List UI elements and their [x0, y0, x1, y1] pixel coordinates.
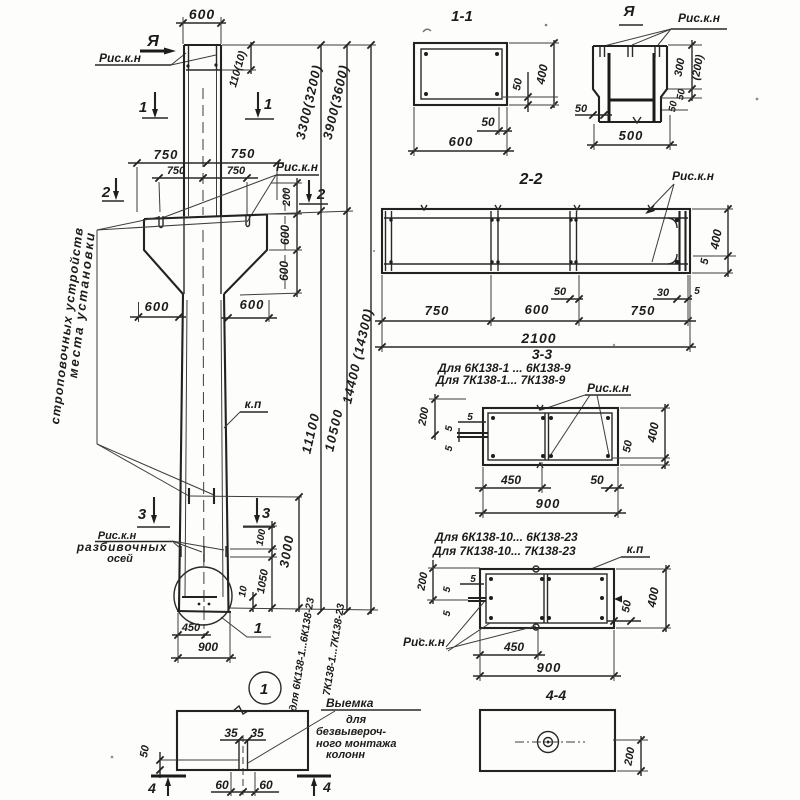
svg-text:к.п: к.п	[245, 397, 262, 411]
svg-text:для: для	[346, 714, 367, 726]
svg-text:3: 3	[138, 506, 147, 523]
svg-text:750: 750	[631, 303, 656, 318]
svg-text:200: 200	[281, 187, 293, 207]
svg-text:750: 750	[227, 165, 246, 177]
svg-text:30: 30	[657, 287, 670, 299]
svg-text:5: 5	[694, 286, 700, 297]
svg-text:50: 50	[575, 103, 588, 115]
svg-text:35: 35	[250, 726, 264, 740]
svg-text:60: 60	[259, 778, 273, 792]
svg-text:1: 1	[260, 681, 268, 698]
svg-text:750: 750	[154, 147, 179, 162]
svg-text:900: 900	[198, 640, 218, 654]
svg-text:1: 1	[264, 96, 272, 113]
svg-text:3: 3	[262, 505, 271, 522]
svg-text:2-2: 2-2	[518, 171, 542, 188]
svg-text:50: 50	[554, 286, 567, 298]
svg-text:3-3: 3-3	[532, 346, 552, 362]
svg-text:600: 600	[145, 299, 170, 314]
svg-text:безвывероч-: безвывероч-	[316, 726, 386, 738]
svg-text:750: 750	[425, 303, 450, 318]
svg-text:осей: осей	[107, 553, 133, 565]
svg-text:Рис.к.н: Рис.к.н	[403, 635, 446, 649]
svg-text:к.п: к.п	[627, 542, 644, 556]
svg-text:4-4: 4-4	[545, 687, 566, 703]
svg-text:600: 600	[240, 297, 265, 312]
svg-text:450: 450	[500, 473, 521, 487]
svg-text:600: 600	[189, 6, 215, 22]
svg-text:35: 35	[224, 726, 238, 740]
svg-text:450: 450	[503, 640, 524, 654]
svg-text:Я: Я	[146, 33, 159, 50]
svg-text:750: 750	[167, 165, 186, 177]
svg-text:600: 600	[525, 302, 550, 317]
svg-text:1: 1	[139, 99, 147, 116]
svg-text:50: 50	[481, 115, 495, 129]
svg-text:колонн: колонн	[326, 749, 365, 761]
svg-text:50: 50	[590, 473, 604, 487]
svg-text:4: 4	[147, 780, 156, 796]
svg-text:4: 4	[322, 779, 331, 795]
svg-text:2: 2	[101, 184, 111, 201]
svg-text:900: 900	[537, 660, 562, 675]
svg-text:60: 60	[215, 778, 229, 792]
svg-text:2100: 2100	[520, 330, 556, 346]
svg-text:Рис.к.н: Рис.к.н	[678, 11, 721, 25]
svg-text:разбивочных: разбивочных	[76, 540, 168, 554]
svg-text:1-1: 1-1	[451, 8, 473, 25]
svg-text:500: 500	[619, 128, 644, 143]
svg-text:Рис.к.н: Рис.к.н	[587, 381, 630, 395]
svg-text:450: 450	[181, 622, 201, 634]
svg-text:900: 900	[536, 496, 561, 511]
svg-text:750: 750	[231, 146, 256, 161]
svg-text:Для 7К138-10... 7К138-23: Для 7К138-10... 7К138-23	[432, 544, 576, 558]
svg-text:Для 7К138-1... 7К138-9: Для 7К138-1... 7К138-9	[435, 373, 566, 387]
svg-text:Выемка: Выемка	[326, 696, 374, 710]
svg-text:Рис.к.н: Рис.к.н	[276, 160, 319, 174]
svg-text:600: 600	[449, 134, 474, 149]
svg-text:600: 600	[277, 261, 291, 281]
svg-text:Для 6К138-10... 6К138-23: Для 6К138-10... 6К138-23	[434, 530, 578, 544]
svg-text:Рис.к.н: Рис.к.н	[672, 169, 715, 183]
svg-text:1: 1	[254, 620, 262, 637]
svg-text:Рис.к.н: Рис.к.н	[99, 51, 142, 65]
svg-text:Я: Я	[623, 3, 636, 20]
